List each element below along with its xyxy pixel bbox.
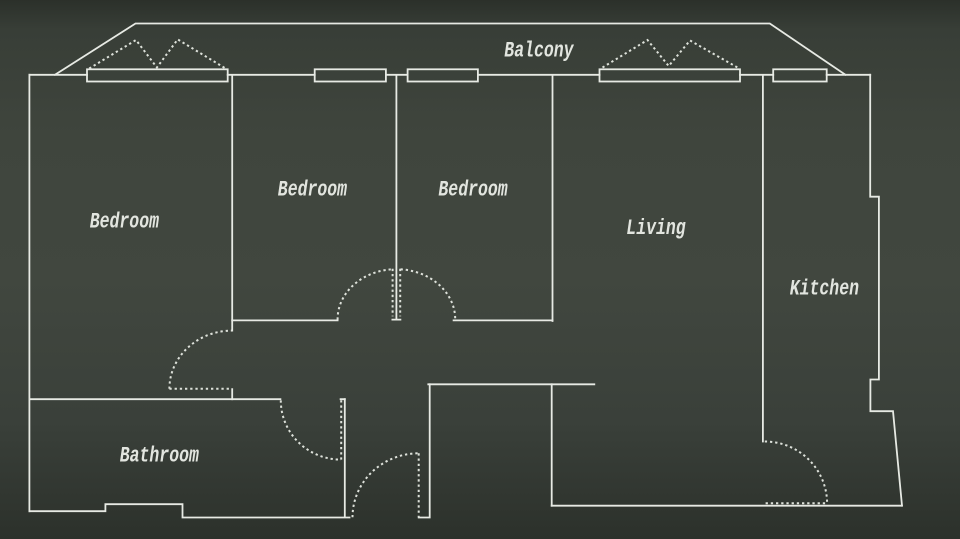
svg-text:Bedroom: Bedroom <box>90 209 160 234</box>
svg-text:Kitchen: Kitchen <box>790 276 859 301</box>
svg-text:Balcony: Balcony <box>504 38 574 63</box>
svg-text:Bathroom: Bathroom <box>120 443 199 468</box>
svg-text:Bedroom: Bedroom <box>278 177 348 202</box>
svg-text:Living: Living <box>626 216 686 241</box>
svg-text:Bedroom: Bedroom <box>438 177 508 202</box>
